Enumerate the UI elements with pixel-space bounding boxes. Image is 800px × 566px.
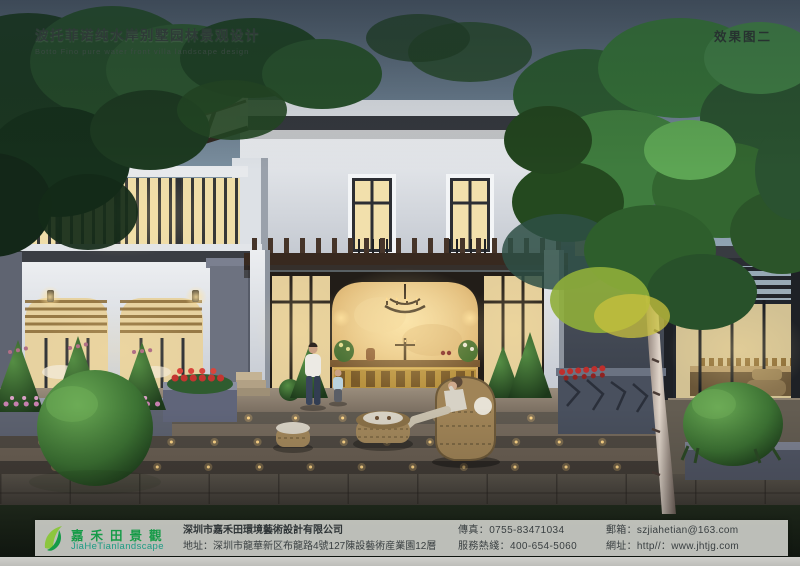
page-title: 波托菲诺纯水岸别墅园林景观设计 (35, 24, 260, 44)
logo-name-en: JiaHeTianlandscape (71, 541, 164, 552)
email-address: 郵箱：szjiahetian@163.com (606, 523, 739, 539)
fax-number: 傳真：0755-83471034 (458, 523, 577, 539)
company-name: 深圳市嘉禾田環境藝術設計有限公司 (183, 523, 436, 539)
bottom-strip (0, 557, 800, 566)
footer-company-block: 深圳市嘉禾田環境藝術設計有限公司 地址：深圳市龍華新区布龍路4號127陳設藝術産… (183, 523, 436, 555)
leaf-swoosh-icon (41, 523, 65, 553)
footer-bar: 嘉禾田景觀 JiaHeTianlandscape 深圳市嘉禾田環境藝術設計有限公… (35, 520, 788, 556)
footer-contact-block: 郵箱：szjiahetian@163.com 網址：http//：www.jht… (606, 523, 739, 555)
villa-rendering (0, 0, 800, 566)
service-hotline: 服務熱綫：400-654-5060 (458, 539, 577, 555)
company-address: 地址：深圳市龍華新区布龍路4號127陳設藝術産業園12層 (183, 539, 436, 555)
footer-phone-block: 傳真：0755-83471034 服務熱綫：400-654-5060 (458, 523, 577, 555)
dusk-grade-overlay (0, 0, 800, 566)
board-header: 波托菲诺纯水岸别墅园林景观设计 Botto Fino pure water fr… (35, 24, 260, 56)
website-url: 網址：http//：www.jhtjg.com (606, 539, 739, 555)
page-subtitle: Botto Fino pure water front villa landsc… (35, 47, 260, 56)
presentation-board: 波托菲诺纯水岸别墅园林景观设计 Botto Fino pure water fr… (0, 0, 800, 566)
company-logo: 嘉禾田景觀 JiaHeTianlandscape (41, 523, 191, 555)
view-label: 效果图二 (714, 26, 772, 45)
